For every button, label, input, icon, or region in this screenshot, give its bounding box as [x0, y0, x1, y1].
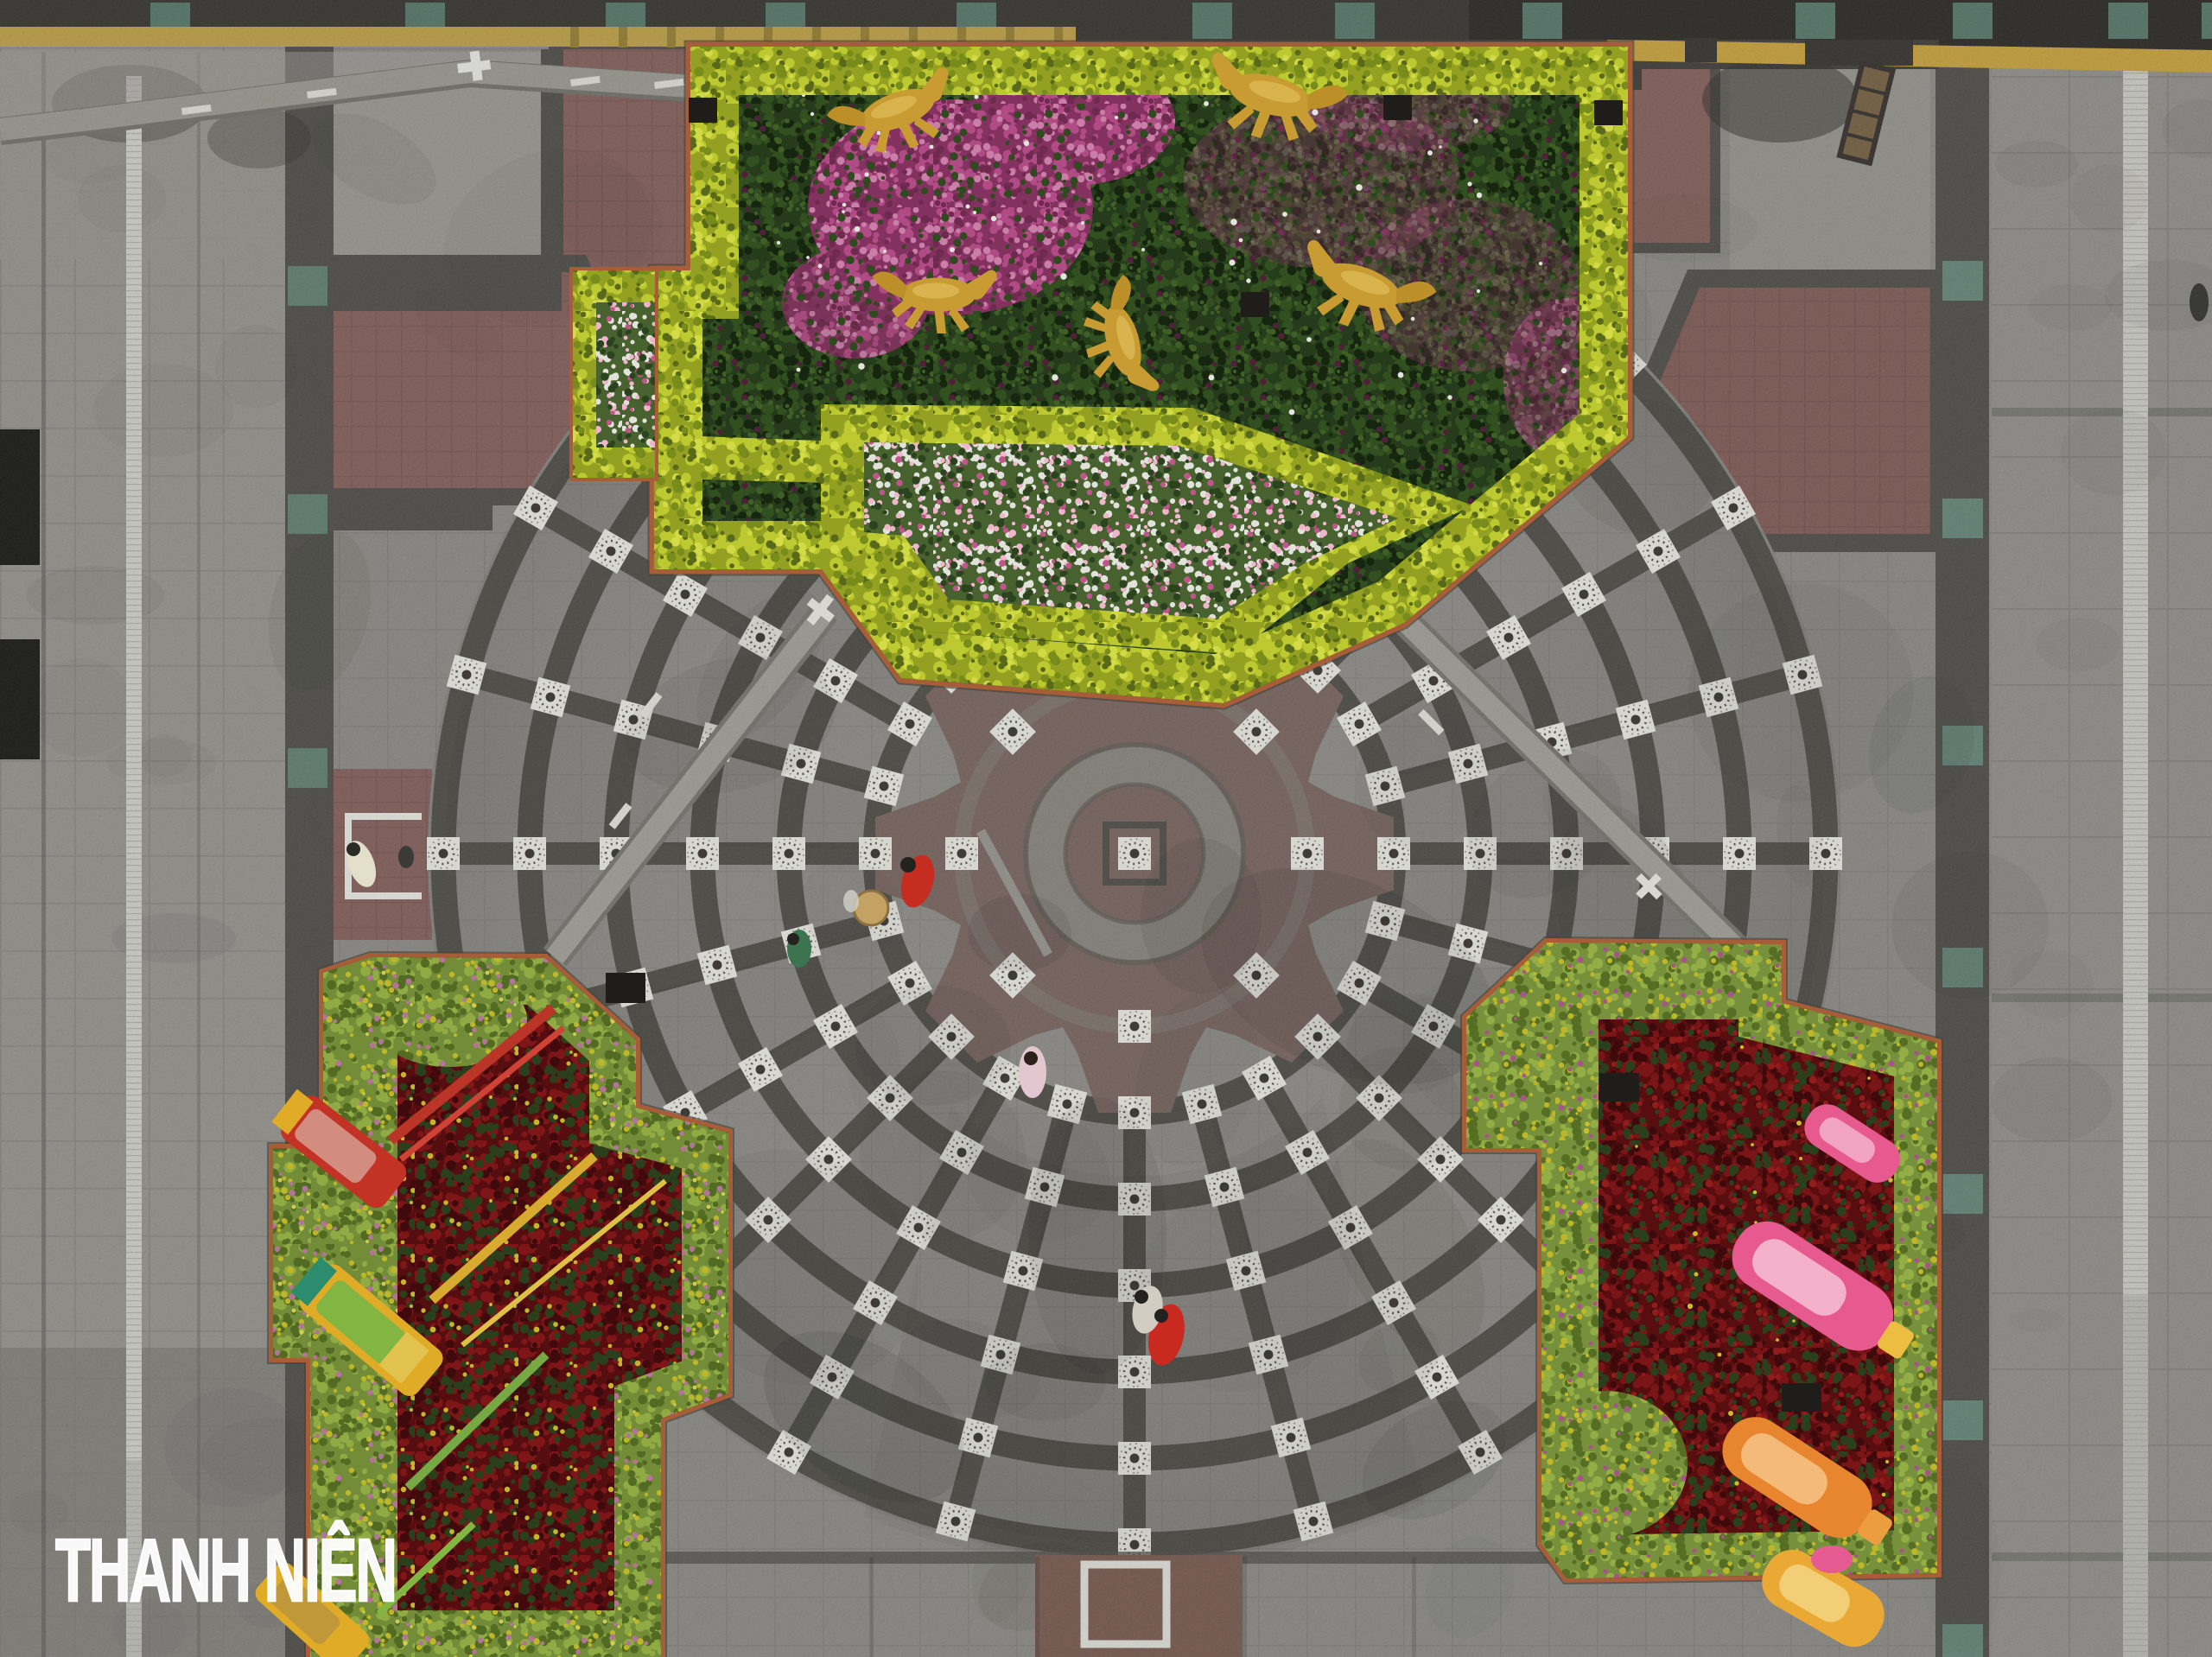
- svg-text:THANH NIÊN: THANH NIÊN: [55, 1520, 396, 1620]
